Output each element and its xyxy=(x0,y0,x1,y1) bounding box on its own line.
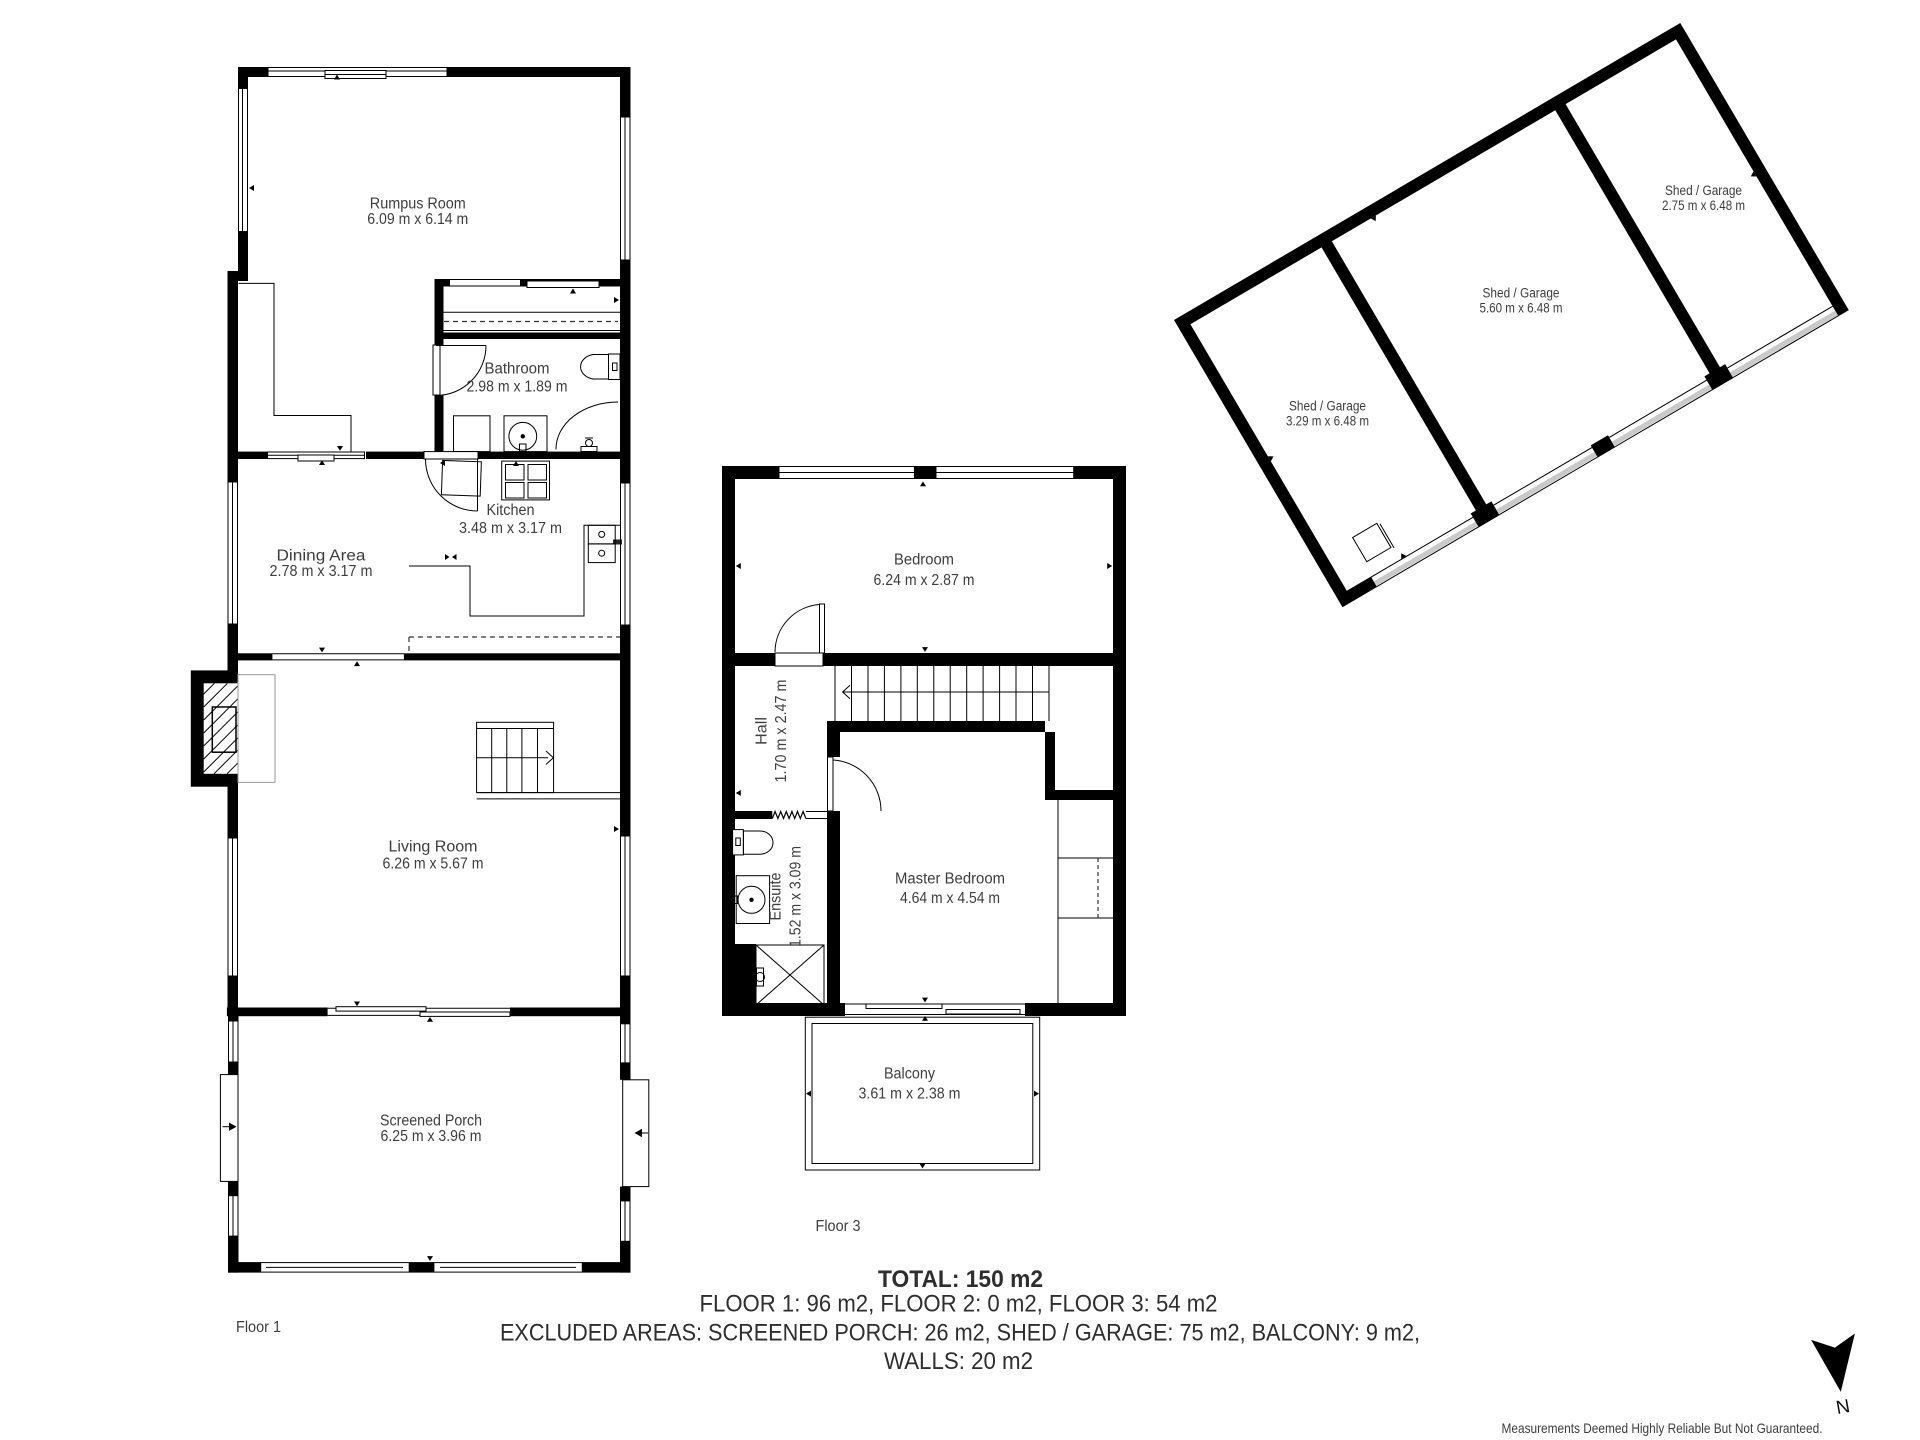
svg-text:Rumpus Room: Rumpus Room xyxy=(370,196,466,213)
svg-text:FLOOR 1: 96 m2, FLOOR 2: 0 m2,: FLOOR 1: 96 m2, FLOOR 2: 0 m2, FLOOR 3: … xyxy=(700,1291,1218,1318)
svg-text:Floor 1: Floor 1 xyxy=(236,1319,281,1336)
svg-text:6.26 m x 5.67 m: 6.26 m x 5.67 m xyxy=(383,856,484,873)
svg-text:Shed / Garage: Shed / Garage xyxy=(1483,286,1560,301)
svg-text:4.64 m x 4.54 m: 4.64 m x 4.54 m xyxy=(900,890,1000,907)
svg-text:EXCLUDED AREAS: SCREENED PORCH: EXCLUDED AREAS: SCREENED PORCH: 26 m2, S… xyxy=(500,1320,1420,1347)
svg-text:1.52 m x 3.09 m: 1.52 m x 3.09 m xyxy=(788,846,805,947)
svg-text:Master Bedroom: Master Bedroom xyxy=(895,871,1005,888)
svg-text:6.25 m x 3.96 m: 6.25 m x 3.96 m xyxy=(381,1128,482,1145)
svg-text:5.60 m x 6.48 m: 5.60 m x 6.48 m xyxy=(1480,301,1563,316)
svg-text:Screened Porch: Screened Porch xyxy=(380,1113,482,1130)
svg-text:Shed / Garage: Shed / Garage xyxy=(1289,399,1366,414)
svg-text:Living Room: Living Room xyxy=(389,839,478,856)
svg-text:2.75 m x 6.48 m: 2.75 m x 6.48 m xyxy=(1662,198,1745,213)
svg-text:6.09 m x 6.14 m: 6.09 m x 6.14 m xyxy=(367,211,468,228)
svg-text:Ensuite: Ensuite xyxy=(768,873,785,921)
svg-text:Bedroom: Bedroom xyxy=(894,552,954,569)
svg-text:TOTAL: 150 m2: TOTAL: 150 m2 xyxy=(878,1266,1043,1293)
svg-text:Dining Area: Dining Area xyxy=(277,548,366,565)
svg-text:2.78 m x 3.17 m: 2.78 m x 3.17 m xyxy=(270,563,373,580)
svg-text:Balcony: Balcony xyxy=(884,1066,935,1083)
svg-text:Hall: Hall xyxy=(754,717,771,745)
svg-text:1.70 m x 2.47 m: 1.70 m x 2.47 m xyxy=(773,680,790,783)
svg-text:Kitchen: Kitchen xyxy=(487,502,535,519)
svg-text:Measurements Deemed Highly Rel: Measurements Deemed Highly Reliable But … xyxy=(1502,1420,1823,1436)
svg-text:2.98 m x 1.89 m: 2.98 m x 1.89 m xyxy=(467,379,568,396)
svg-text:Bathroom: Bathroom xyxy=(485,361,550,378)
svg-text:3.48 m x 3.17 m: 3.48 m x 3.17 m xyxy=(459,520,562,537)
svg-text:WALLS: 20 m2: WALLS: 20 m2 xyxy=(884,1348,1033,1375)
svg-text:Floor 3: Floor 3 xyxy=(816,1218,861,1235)
svg-text:3.61 m x 2.38 m: 3.61 m x 2.38 m xyxy=(859,1086,961,1103)
svg-text:3.29 m x 6.48 m: 3.29 m x 6.48 m xyxy=(1286,414,1369,429)
svg-text:Shed / Garage: Shed / Garage xyxy=(1665,183,1742,198)
svg-text:6.24 m x 2.87 m: 6.24 m x 2.87 m xyxy=(874,572,975,589)
